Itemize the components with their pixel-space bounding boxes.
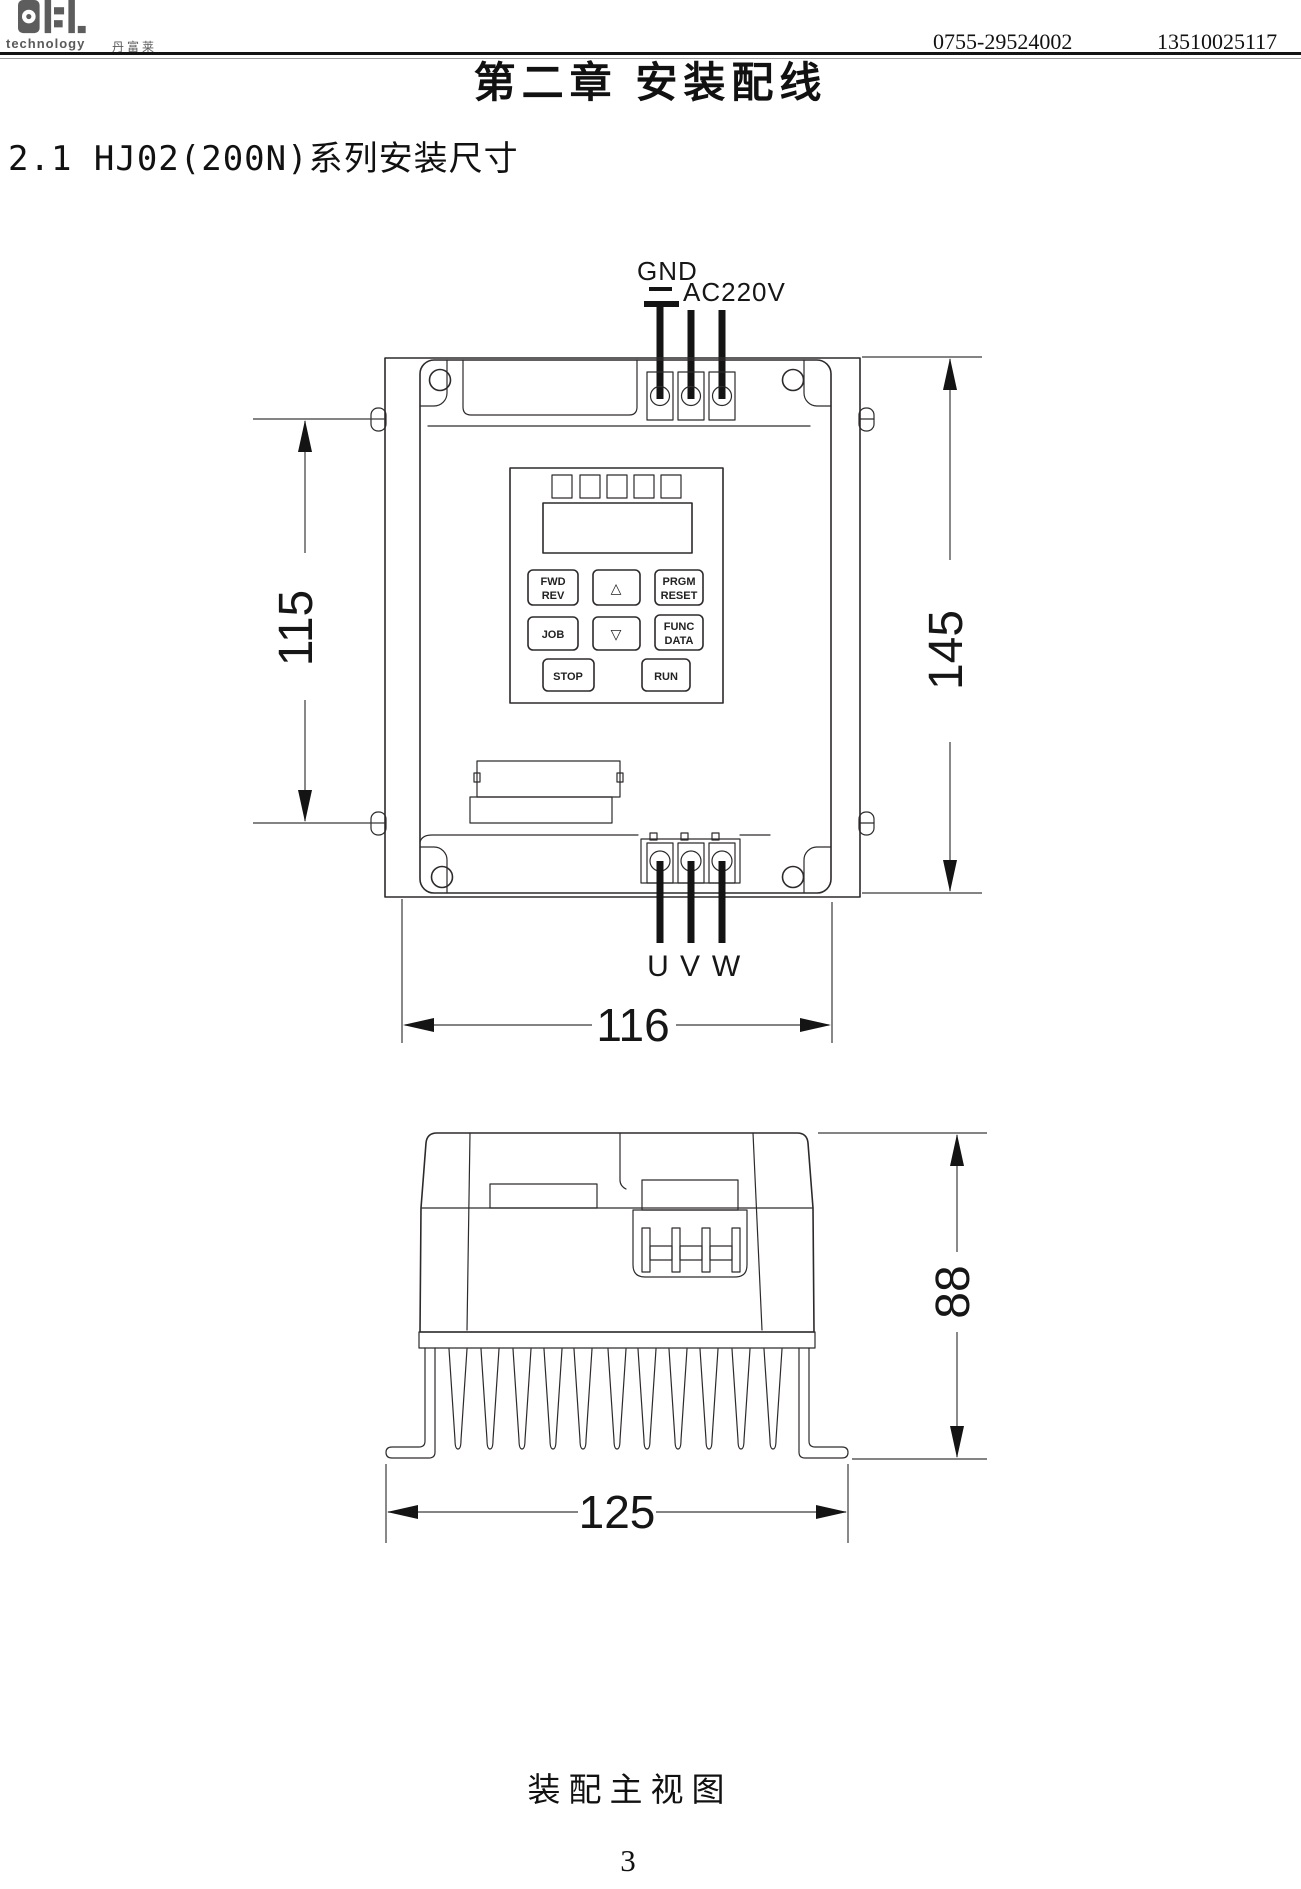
connector-upper [477, 761, 620, 797]
ac220v-label: AC220V [683, 277, 786, 307]
dim-88-value: 88 [927, 1265, 980, 1318]
prgm-label: PRGM [663, 576, 696, 588]
heatsink-fin [449, 1349, 467, 1449]
heatsink-fin [732, 1349, 750, 1449]
arrow-left-icon [403, 1018, 434, 1032]
body-seam-bottom-left [420, 835, 638, 842]
manual-page: technology 丹富莱 0755-29524002 13510025117… [0, 0, 1301, 1889]
keypad: FWD REV △ PRGM RESET JOB ▽ FUNC DATA STO… [510, 468, 723, 703]
side-terminal-gap [710, 1246, 732, 1260]
heatsink-fin [544, 1349, 562, 1449]
dimension-88: 88 [818, 1133, 987, 1459]
side-terminal-gap [680, 1246, 702, 1260]
corner-trim-top-left [420, 360, 447, 406]
arrow-down-icon [943, 860, 957, 892]
dim-115-value: 115 [270, 590, 323, 667]
mounting-hole-top-right [783, 370, 804, 391]
keypad-display [543, 503, 692, 553]
control-connector [470, 761, 623, 823]
led-indicator-5 [661, 475, 681, 498]
ground-symbol-icon [644, 289, 679, 304]
v-label: V [680, 950, 700, 983]
mounting-hole-bottom-left [432, 867, 453, 888]
side-edge-left [467, 1133, 470, 1330]
heatsink-fin [700, 1349, 718, 1449]
side-top-plate [642, 1180, 738, 1210]
mounting-hole-bottom-right [783, 867, 804, 888]
heatsink-fin [608, 1349, 626, 1449]
side-edge-right [753, 1133, 762, 1330]
u-label: U [647, 950, 669, 983]
heatsink-base [419, 1332, 815, 1348]
side-step-line [620, 1133, 626, 1189]
arrow-left-icon [387, 1505, 418, 1519]
dim-116-value: 116 [596, 999, 669, 1051]
side-terminal-screw [702, 1228, 710, 1272]
side-terminal-screw [672, 1228, 680, 1272]
func-label: FUNC [664, 621, 695, 633]
front-view: GND AC220V [253, 256, 982, 1051]
side-view: 88 125 [386, 1133, 987, 1543]
up-arrow-icon: △ [611, 581, 622, 597]
installation-drawing: GND AC220V [0, 0, 1301, 1889]
arrow-up-icon [950, 1134, 964, 1166]
heatsink-fins [449, 1349, 782, 1449]
dim-145-value: 145 [920, 610, 973, 690]
side-terminal-block [633, 1210, 747, 1277]
corner-trim-top-right [804, 360, 831, 406]
heatsink-fin [513, 1349, 531, 1449]
led-indicator-2 [580, 475, 600, 498]
down-arrow-icon: ▽ [611, 627, 622, 643]
led-indicator-1 [552, 475, 572, 498]
side-terminal-gap [650, 1246, 672, 1260]
stop-label: STOP [553, 671, 583, 683]
arrow-right-icon [816, 1505, 847, 1519]
led-indicator-3 [607, 475, 627, 498]
rev-label: REV [542, 590, 565, 602]
heatsink-fin [481, 1349, 499, 1449]
arrow-down-icon [298, 790, 312, 822]
job-label: JOB [542, 629, 565, 641]
heatsink-fin [638, 1349, 656, 1449]
mounting-foot-right [799, 1348, 848, 1458]
top-recess-panel [463, 360, 637, 415]
page-number: 3 [0, 1843, 1256, 1879]
mounting-foot-left [386, 1348, 435, 1458]
w-label: W [712, 950, 741, 983]
heatsink-fin [574, 1349, 592, 1449]
side-terminal-screw [642, 1228, 650, 1272]
side-label-plate [490, 1184, 597, 1208]
connector-lower [470, 797, 612, 823]
fwd-label: FWD [540, 576, 565, 588]
arrow-down-icon [950, 1426, 964, 1458]
arrow-up-icon [298, 420, 312, 452]
run-label: RUN [654, 671, 678, 683]
arrow-right-icon [800, 1018, 831, 1032]
arrow-up-icon [943, 358, 957, 390]
dim-125-value: 125 [579, 1486, 656, 1538]
side-terminal-screw [732, 1228, 740, 1272]
back-plate [385, 358, 860, 897]
dimension-145: 145 [862, 357, 982, 893]
heatsink-fin [669, 1349, 687, 1449]
dimension-115: 115 [253, 419, 385, 823]
dimension-116: 116 [402, 899, 832, 1051]
heatsink-fin [764, 1349, 782, 1449]
reset-label: RESET [661, 590, 698, 602]
led-indicator-4 [634, 475, 654, 498]
inverter-body [420, 360, 831, 893]
dimension-125: 125 [386, 1464, 848, 1543]
data-label: DATA [665, 635, 694, 647]
figure-caption: 装配主视图 [0, 1763, 1260, 1811]
corner-trim-bottom-right [804, 847, 831, 893]
